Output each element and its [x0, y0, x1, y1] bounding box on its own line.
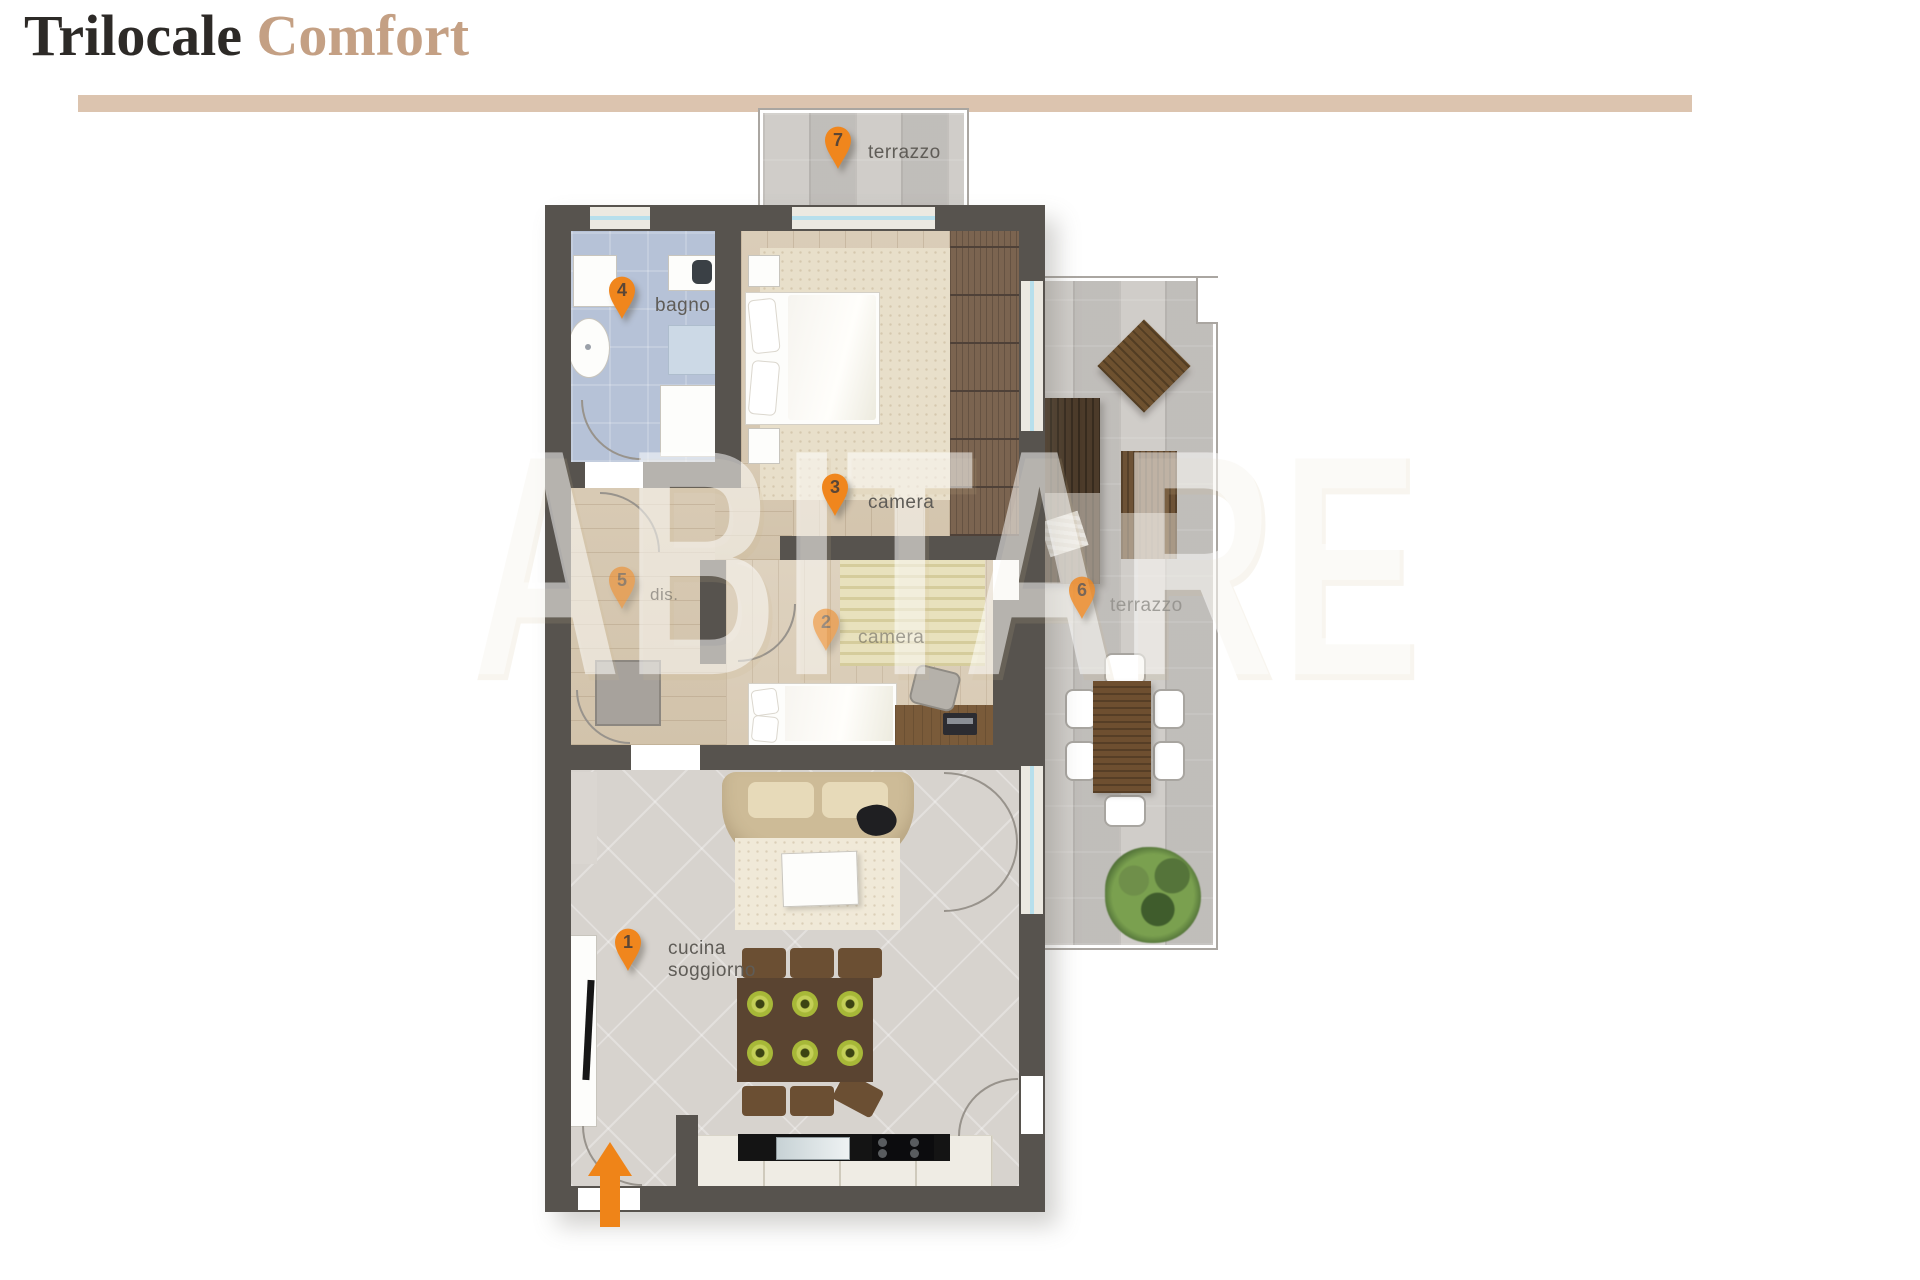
marker-label-4: bagno — [655, 295, 710, 317]
bed-pillow — [748, 360, 781, 416]
laptop — [943, 713, 977, 735]
terrace-table-diamond — [1097, 319, 1190, 412]
marker-number: 1 — [613, 932, 643, 953]
terrace-chair — [1153, 741, 1185, 781]
laptop-keys — [947, 718, 973, 724]
tv-screen — [582, 980, 594, 1080]
wall-left — [545, 205, 571, 1212]
marker-pin-5: 5 — [607, 566, 637, 610]
plant — [1105, 847, 1201, 943]
window-glass — [590, 216, 650, 220]
terrace-notch — [1196, 278, 1218, 324]
plate — [792, 1040, 818, 1066]
marker-label-5: dis. — [650, 585, 678, 605]
bed-duvet — [785, 686, 893, 741]
french-door-opening — [1021, 766, 1043, 914]
arrow-shaft — [600, 1175, 620, 1227]
marker-pin-4: 4 — [607, 276, 637, 320]
marker-pin-2: 2 — [811, 608, 841, 652]
coffee-table — [781, 851, 859, 908]
terrace-chair — [1104, 795, 1146, 827]
armchair-shade — [1121, 513, 1177, 559]
marker-label-3: camera — [868, 492, 934, 514]
plate — [747, 991, 773, 1017]
burner — [910, 1138, 919, 1147]
bed-duvet — [788, 295, 876, 420]
marker-label-7: terrazzo — [868, 142, 941, 164]
shower-tray — [660, 385, 717, 457]
burner — [878, 1138, 887, 1147]
dining-chair — [790, 1086, 834, 1116]
marker-label-2: camera — [858, 627, 924, 649]
wall-living-b — [700, 745, 1019, 770]
bed-pillow — [750, 687, 779, 716]
lounge-chair — [1036, 398, 1100, 584]
marker-pin-7: 7 — [823, 126, 853, 170]
double-bed — [745, 292, 880, 425]
dining-table — [737, 978, 873, 1082]
marker-number: 5 — [607, 570, 637, 591]
living-niche — [571, 772, 597, 864]
terrace-dining-table — [1093, 681, 1151, 793]
plate — [837, 1040, 863, 1066]
terrace-chair — [1153, 689, 1185, 729]
marker-label-6: terrazzo — [1110, 595, 1183, 617]
shower-box-blue — [668, 325, 718, 375]
single-bed — [748, 683, 897, 747]
sofa-cushion — [748, 782, 814, 818]
arrow-head — [588, 1142, 632, 1176]
kitchen-worktop — [738, 1134, 950, 1161]
bed-pillow — [751, 715, 780, 744]
wall-dis-camera2 — [700, 560, 726, 664]
window-glass — [1030, 281, 1034, 431]
washing-machine — [668, 255, 716, 291]
window — [590, 207, 650, 229]
pilaster — [993, 600, 1019, 745]
bed-pillow — [747, 298, 780, 355]
dining-chair — [742, 1086, 786, 1116]
wall-bagno-bottom-b — [643, 462, 741, 488]
floor-plan: ABITARE 1 cucina soggiorno 2 camera 3 ca… — [0, 0, 1920, 1280]
kitchen-counter — [688, 1135, 993, 1188]
marker-number: 4 — [607, 280, 637, 301]
entrance-arrow-icon — [588, 1142, 632, 1232]
plate — [837, 991, 863, 1017]
kitchen-hob — [872, 1135, 934, 1160]
marker-pin-1: 1 — [613, 928, 643, 972]
plate — [747, 1040, 773, 1066]
wall-bagno-camera3 — [715, 231, 741, 471]
washer-drum — [692, 260, 712, 284]
kitchen-sink — [776, 1137, 850, 1160]
marker-number: 6 — [1067, 580, 1097, 601]
marker-number: 7 — [823, 130, 853, 151]
basin-drain — [585, 344, 591, 350]
nightstand — [748, 255, 780, 287]
door-opening — [1021, 1076, 1043, 1134]
marker-label-1: cucina soggiorno — [668, 938, 778, 982]
marker-pin-6: 6 — [1067, 576, 1097, 620]
wall-bagno-bottom-a — [571, 462, 585, 488]
wardrobe — [950, 231, 1019, 536]
window — [792, 207, 935, 229]
plate — [792, 991, 818, 1017]
wall-living-a — [571, 745, 631, 770]
page: { "header": { "title_primary": "Trilocal… — [0, 0, 1920, 1280]
dining-chair — [790, 948, 834, 978]
marker-pin-3: 3 — [820, 473, 850, 517]
burner — [878, 1149, 887, 1158]
window — [1021, 281, 1043, 431]
marker-number: 2 — [811, 612, 841, 633]
wall-camera3-camera2 — [780, 536, 1019, 560]
dining-chair — [838, 948, 882, 978]
marker-number: 3 — [820, 477, 850, 498]
camera2-straw-mat — [840, 560, 985, 666]
lounge-shade — [1036, 493, 1100, 584]
window-glass — [1030, 766, 1034, 914]
terrace-armchair — [1121, 451, 1177, 559]
bath-basin — [568, 318, 610, 378]
burner — [910, 1149, 919, 1158]
kitchen-stub — [676, 1115, 698, 1186]
nightstand — [748, 428, 780, 464]
window-glass — [792, 216, 935, 220]
